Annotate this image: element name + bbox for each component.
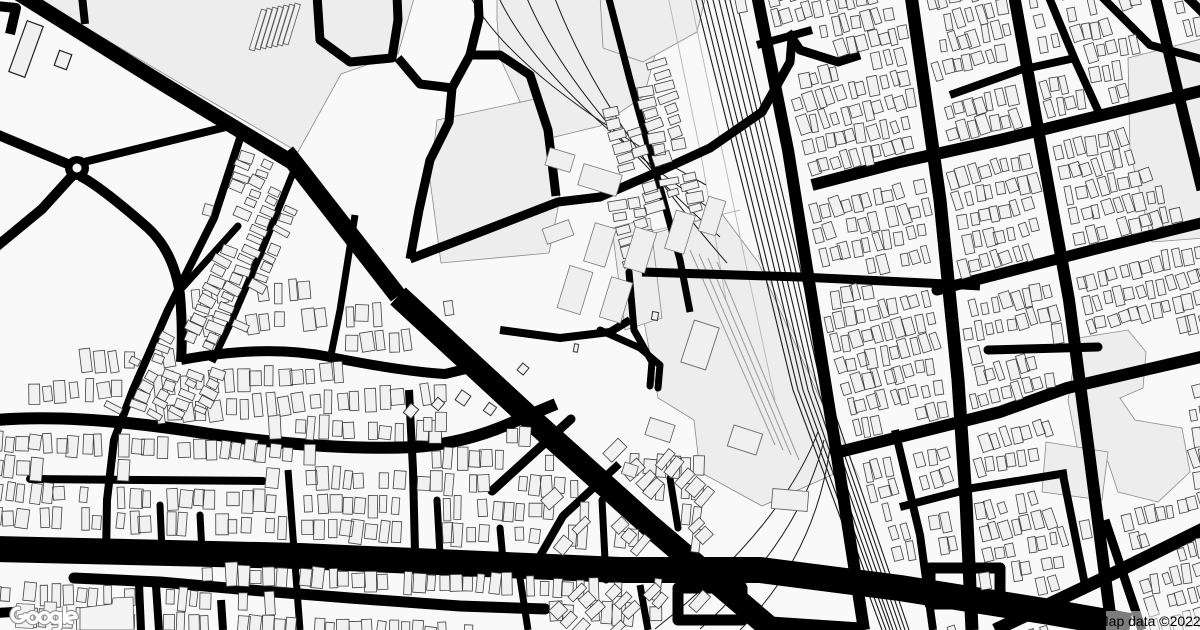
svg-text:Map data ©2022: Map data ©2022 <box>1097 613 1200 629</box>
